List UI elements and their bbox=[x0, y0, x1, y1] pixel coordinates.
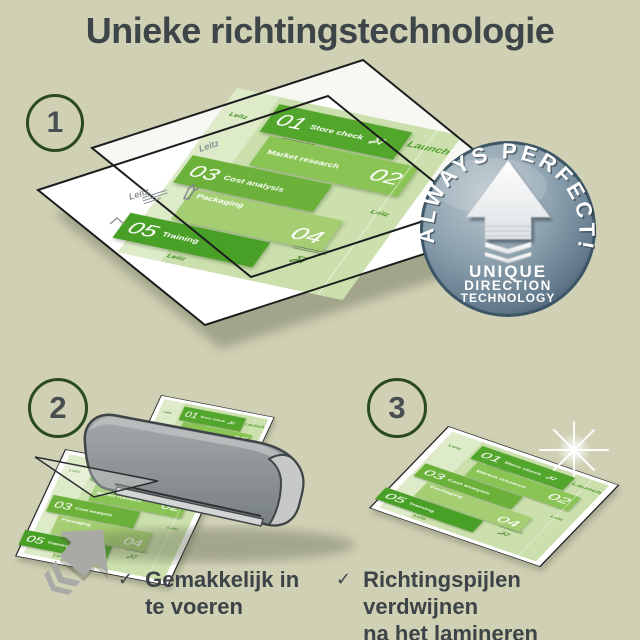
direction-arrow-icon bbox=[28, 512, 132, 612]
page-title: Unieke richtingstechnologie bbox=[0, 10, 640, 52]
infographic-unique-direction-technology: Unieke richtingstechnologie 1 Launch Lei… bbox=[0, 0, 640, 640]
shine-sparkle-icon bbox=[538, 416, 610, 488]
checklist-text: Gemakkelijk in te voeren bbox=[145, 566, 299, 620]
badge-label-technology: TECHNOLOGY bbox=[461, 291, 556, 305]
brand-mark: Leitz bbox=[165, 253, 187, 262]
direction-arrow-icon bbox=[496, 531, 512, 537]
direction-arrow-icon bbox=[367, 135, 388, 146]
direction-arrow-icon bbox=[288, 254, 311, 266]
brand-mark: Leitz bbox=[227, 111, 249, 120]
check-icon: ✓ bbox=[118, 566, 133, 620]
always-perfect-badge: ALWAYS PERFECT! ALWAYS PERFECT! UNIQUE D… bbox=[419, 140, 597, 318]
checklist-item-easy-feed: ✓ Gemakkelijk in te voeren bbox=[118, 566, 299, 620]
brand-mark: Leitz bbox=[447, 444, 462, 451]
step-3-marker: 3 bbox=[367, 378, 427, 438]
checklist-item-arrows-disappear: ✓ Richtingspijlen verdwijnen na het lami… bbox=[336, 566, 640, 640]
checklist-text: Richtingspijlen verdwijnen na het lamine… bbox=[363, 566, 640, 640]
check-icon: ✓ bbox=[336, 566, 351, 640]
